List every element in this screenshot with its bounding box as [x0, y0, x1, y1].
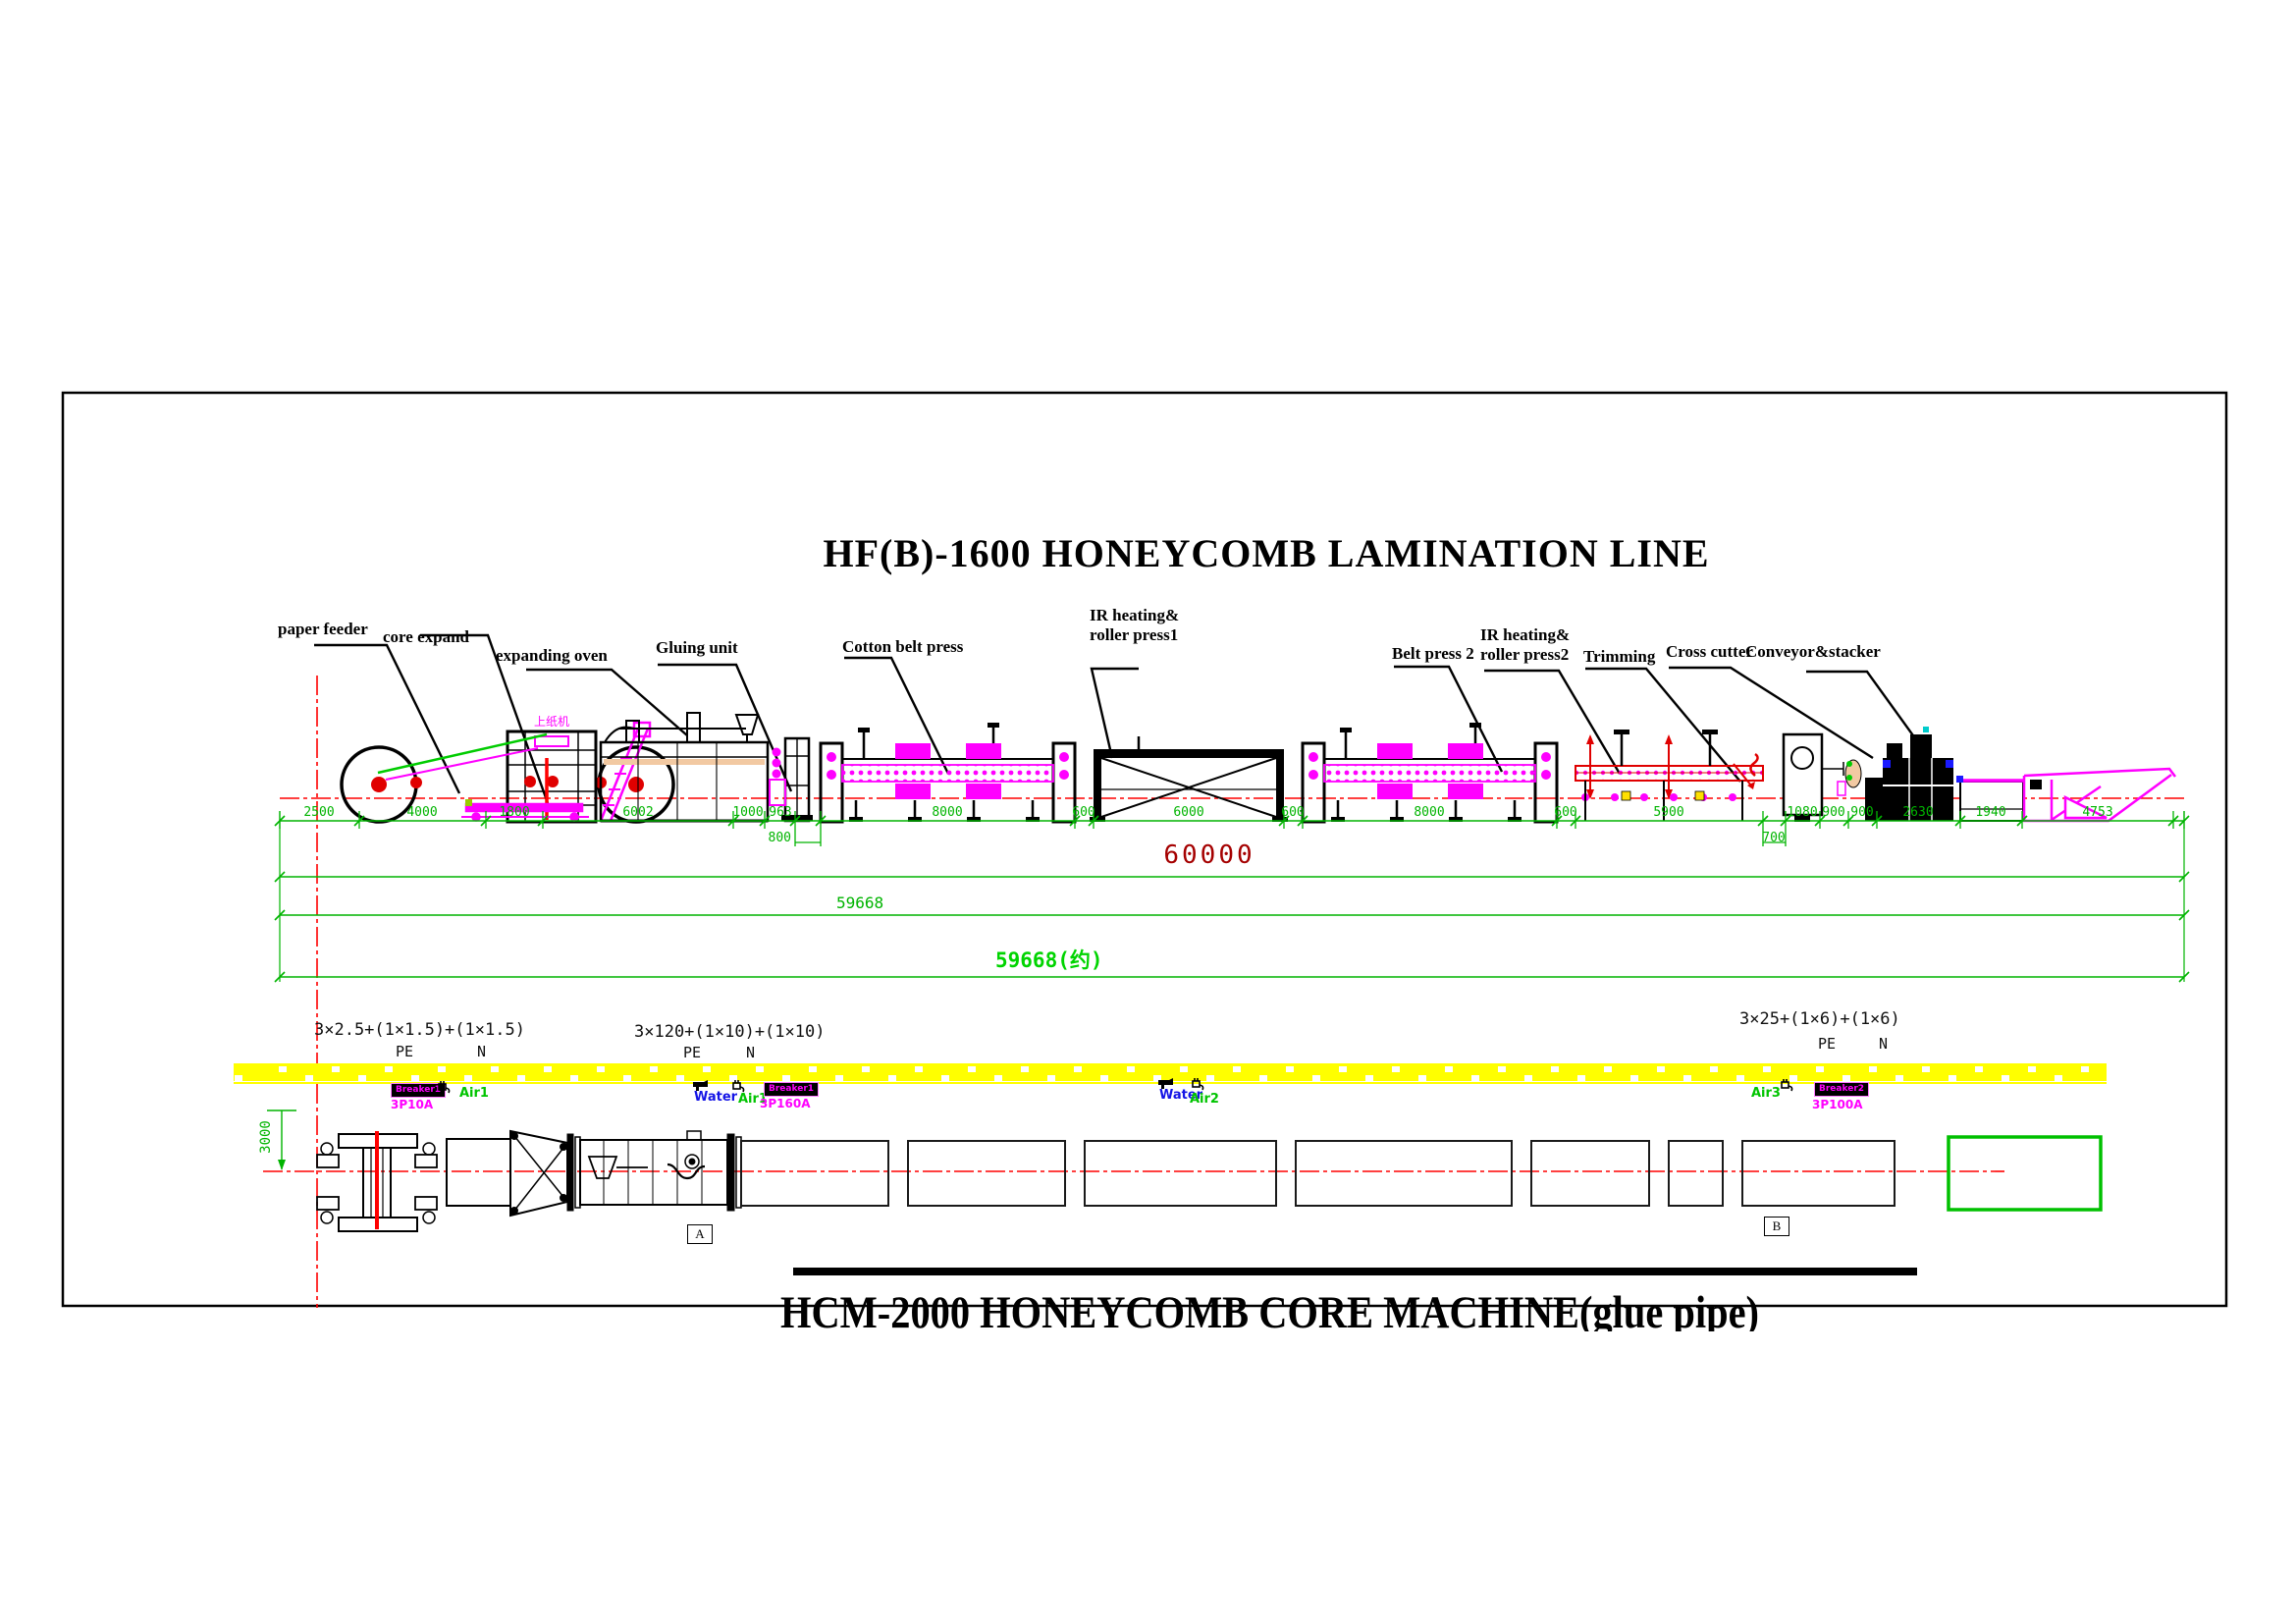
cable-2-pe: PE — [683, 1044, 701, 1061]
cable-3-n: N — [1879, 1035, 1888, 1053]
cable-1-pe: PE — [396, 1043, 413, 1060]
dim-6000: 6000 — [1173, 805, 1203, 820]
cable-spec-3: 3×25+(1×6)+(1×6) — [1739, 1009, 1900, 1029]
bottom-title: HCM-2000 HONEYCOMB CORE MACHINE(glue pip… — [780, 1277, 1768, 1331]
cable-spec-1: 3×2.5+(1×1.5)+(1×1.5) — [314, 1020, 525, 1040]
dim-total-59668: 59668 — [836, 893, 883, 912]
cable-2-n: N — [746, 1044, 755, 1061]
cable-spec-2: 3×120+(1×10)+(1×10) — [634, 1022, 825, 1042]
drawing-canvas: HF(B)-1600 HONEYCOMB LAMINATION LINE pap… — [0, 0, 2296, 1624]
dim-total-60000: 60000 — [1163, 840, 1255, 870]
dim-total-59668-approx: 59668(约) — [995, 945, 1103, 974]
dim-1080: 1080 — [1787, 805, 1817, 820]
label-trimming: Trimming — [1583, 647, 1655, 667]
dim-4000: 4000 — [406, 805, 437, 820]
dim-600-b: 600 — [1281, 805, 1304, 820]
label-ir1-line1: IR heating& — [1090, 606, 1179, 625]
power-plug-icon — [436, 1080, 452, 1096]
dim-800: 800 — [769, 831, 791, 845]
dim-2630: 2630 — [1902, 805, 1933, 820]
label-ir-roller-press-2: IR heating& roller press2 — [1480, 625, 1570, 665]
main-title: HF(B)-1600 HONEYCOMB LAMINATION LINE — [823, 530, 1709, 576]
drawing-linework — [0, 0, 2296, 1624]
label-gluing-unit: Gluing unit — [656, 638, 738, 658]
breaker-rating-3: 3P100A — [1812, 1098, 1862, 1111]
dim-5900: 5900 — [1653, 805, 1683, 820]
cable-1-n: N — [477, 1043, 486, 1060]
label-belt-press-2: Belt press 2 — [1392, 644, 1474, 664]
label-conveyor-stacker: Conveyor&stacker — [1745, 642, 1881, 662]
core-machine-body — [447, 1131, 741, 1216]
label-core-expand: core expand — [383, 627, 469, 647]
dim-6002: 6002 — [622, 805, 653, 820]
core-machine-sections — [741, 1137, 2101, 1210]
label-ir-roller-press-1: IR heating& roller press1 — [1090, 606, 1179, 645]
label-ir1-line2: roller press1 — [1090, 625, 1179, 645]
label-feeder-chinese: 上纸机 — [534, 713, 569, 730]
bottom-title-clip: HCM-2000 HONEYCOMB CORE MACHINE(glue pip… — [780, 1277, 1929, 1331]
label-expanding-oven: expanding oven — [496, 646, 608, 666]
label-cotton-belt-press: Cotton belt press — [842, 637, 963, 657]
dim-vertical-3000: 3000 — [258, 1120, 274, 1154]
air-label-4: Air3 — [1751, 1086, 1781, 1101]
dim-900-b: 900 — [1850, 805, 1873, 820]
breaker-box-3: Breaker2 — [1814, 1082, 1869, 1097]
dim-8000-a: 8000 — [932, 805, 962, 820]
dim-2500: 2500 — [303, 805, 334, 820]
label-ir2-line2: roller press2 — [1480, 645, 1570, 665]
dim-600-c: 600 — [1554, 805, 1576, 820]
label-cross-cutter: Cross cutter — [1666, 642, 1753, 662]
dim-963: 963 — [769, 805, 791, 820]
section-marker-a: A — [687, 1224, 713, 1244]
breaker-rating-1: 3P10A — [391, 1098, 433, 1111]
power-plug-icon — [1190, 1077, 1205, 1093]
air-label-1: Air1 — [459, 1086, 489, 1101]
label-ir2-line1: IR heating& — [1480, 625, 1570, 645]
dim-600-a: 600 — [1072, 805, 1095, 820]
power-plug-icon — [1779, 1078, 1794, 1094]
air-label-3: Air2 — [1190, 1092, 1219, 1107]
dim-8000-b: 8000 — [1414, 805, 1444, 820]
breaker-rating-2: 3P160A — [760, 1097, 810, 1110]
core-machine-unwinder-front — [317, 1131, 437, 1231]
dim-1800: 1800 — [499, 805, 529, 820]
dim-700: 700 — [1762, 831, 1785, 845]
dim-4753: 4753 — [2082, 805, 2112, 820]
cable-3-pe: PE — [1818, 1035, 1836, 1053]
dim-1940: 1940 — [1975, 805, 2005, 820]
label-paper-feeder: paper feeder — [278, 620, 368, 639]
section-marker-b: B — [1764, 1217, 1789, 1236]
breaker-box-2: Breaker1 — [764, 1082, 819, 1097]
dim-900-a: 900 — [1822, 805, 1844, 820]
dim-1000: 1000 — [732, 805, 763, 820]
